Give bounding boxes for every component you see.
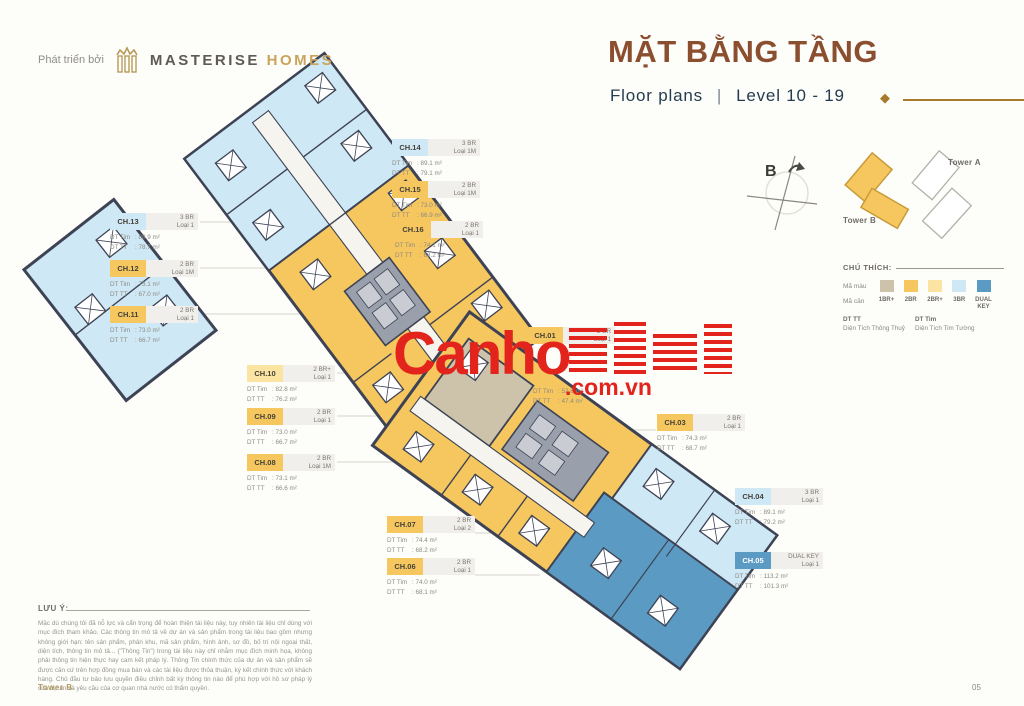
watermark-suffix: .com.vn (565, 374, 652, 401)
legend-swatch-2br (904, 280, 918, 292)
unit-type: 2 BRLoại 1M (283, 454, 335, 471)
unit-code-chip: CH.10 (247, 365, 283, 382)
unit-code-chip: CH.09 (247, 408, 283, 425)
unit-code-chip: CH.04 (735, 488, 771, 505)
compass-icon: B (745, 138, 825, 238)
unit-type: 2 BRLoại 1M (146, 260, 198, 277)
unit-label-ch10: CH.102 BR+Loại 1DT Tim: 82.8 m²DT TT: 76… (247, 365, 335, 405)
unit-label-ch16: CH.162 BRLoại 1DT Tim: 74.1 m²DT TT: 68.… (395, 221, 483, 261)
legend-dt-tim: DT Tim Diện Tích Tim Tường (915, 316, 1005, 332)
legend-swatch-2br+ (928, 280, 942, 292)
unit-code-chip: CH.06 (387, 558, 423, 575)
unit-type: 2 BR+Loại 1 (283, 365, 335, 382)
unit-label-ch06: CH.062 BRLoại 1DT Tim: 74.0 m²DT TT: 68.… (387, 558, 475, 598)
unit-code-chip: CH.08 (247, 454, 283, 471)
unit-label-ch07: CH.072 BRLoại 2DT Tim: 74.4 m²DT TT: 68.… (387, 516, 475, 556)
unit-type: 3 BRLoại 1M (428, 139, 480, 156)
dt-tim-abbr: DT Tim (915, 316, 1005, 323)
unit-type: 2 BRLoại 1 (431, 221, 483, 238)
unit-label-ch12: CH.122 BRLoại 1MDT Tim: 73.1 m²DT TT: 67… (110, 260, 198, 300)
unit-areas: DT Tim: 73.1 m²DT TT: 66.6 m² (247, 474, 335, 494)
unit-code-chip: CH.12 (110, 260, 146, 277)
subtitle-divider: | (717, 86, 722, 106)
unit-label-ch13: CH.133 BRLoại 1DT Tim: 88.9 m²DT TT: 78.… (110, 213, 198, 253)
page-title: MẶT BẰNG TẦNG (608, 34, 878, 70)
legend-rule (896, 268, 1004, 269)
unit-label-ch08: CH.082 BRLoại 1MDT Tim: 73.1 m²DT TT: 66… (247, 454, 335, 494)
unit-areas: DT Tim: 74.3 m²DT TT: 68.7 m² (657, 434, 745, 454)
unit-type: 2 BRLoại 2 (423, 516, 475, 533)
unit-label-ch09: CH.092 BRLoại 1DT Tim: 73.0 m²DT TT: 66.… (247, 408, 335, 448)
unit-type: 2 BRLoại 1 (283, 408, 335, 425)
note-rule (66, 610, 310, 611)
unit-areas: DT Tim: 73.0 m²DT TT: 66.7 m² (110, 326, 198, 346)
legend-swatch-row (876, 280, 994, 292)
unit-label-ch03: CH.032 BRLoại 1DT Tim: 74.3 m²DT TT: 68.… (657, 414, 745, 454)
page-subtitle: Floor plans | Level 10 - 19 (610, 86, 845, 106)
legend-swatch-1br+ (880, 280, 894, 292)
unit-type: DUAL KEYLoại 1 (771, 552, 823, 569)
page-number: 05 (972, 683, 981, 692)
unit-areas: DT Tim: 74.0 m²DT TT: 68.1 m² (387, 578, 475, 598)
developer-row: Phát triển bởi MASTERISE HOMES (38, 46, 334, 74)
legend-code-row-label: Mã căn (843, 298, 864, 305)
legend-code-2br: 2BR (900, 297, 921, 311)
legend-color-row-label: Mã màu (843, 283, 866, 290)
unit-type: 3 BRLoại 1 (146, 213, 198, 230)
masterise-logo-icon (114, 46, 140, 74)
unit-type: 2 BRLoại 1 (693, 414, 745, 431)
watermark-buildings-icon (569, 322, 732, 374)
tower-a-label: Tower A (948, 158, 981, 167)
canho-watermark: Canho .com.vn (383, 322, 763, 402)
unit-type: 3 BRLoại 1 (771, 488, 823, 505)
unit-areas: DT Tim: 89.1 m²DT TT: 79.2 m² (735, 508, 823, 528)
legend-code-dual-key: DUAL KEY (973, 297, 994, 311)
legend-swatch-dual-key (977, 280, 991, 292)
legend-title: CHÚ THÍCH: (843, 263, 892, 272)
unit-label-ch14: CH.143 BRLoại 1MDT Tim: 89.1 m²DT TT: 79… (392, 139, 480, 179)
unit-code-chip: CH.03 (657, 414, 693, 431)
note-title: LƯU Ý: (38, 604, 69, 613)
watermark-text: Canho (393, 324, 570, 384)
subtitle-right: Level 10 - 19 (736, 86, 845, 106)
legend-code-1br+: 1BR+ (876, 297, 897, 311)
unit-areas: DT Tim: 74.4 m²DT TT: 68.2 m² (387, 536, 475, 556)
compass-letter: B (765, 163, 777, 180)
developer-prefix: Phát triển bởi (38, 54, 104, 66)
legend-code-2br+: 2BR+ (925, 297, 946, 311)
unit-label-ch15: CH.152 BRLoại 1MDT Tim: 73.0 m²DT TT: 66… (392, 181, 480, 221)
unit-areas: DT Tim: 113.2 m²DT TT: 101.3 m² (735, 572, 823, 592)
footer-tower-label: Tower B (38, 683, 72, 692)
diamond-icon: ◆ (880, 90, 890, 106)
unit-areas: DT Tim: 82.8 m²DT TT: 76.2 m² (247, 385, 335, 405)
dt-tt-abbr: DT TT (843, 316, 909, 323)
unit-code-chip: CH.15 (392, 181, 428, 198)
unit-areas: DT Tim: 73.0 m²DT TT: 66.7 m² (247, 428, 335, 448)
unit-code-chip: CH.11 (110, 306, 146, 323)
unit-code-chip: CH.16 (395, 221, 431, 238)
unit-areas: DT Tim: 89.1 m²DT TT: 79.1 m² (392, 159, 480, 179)
legend-dt-tt: DT TT Diện Tích Thông Thuỷ (843, 316, 909, 332)
note-body: Mặc dù chúng tôi đã nỗ lực và cẩn trọng … (38, 619, 312, 694)
subtitle-left: Floor plans (610, 86, 703, 106)
unit-code-chip: CH.14 (392, 139, 428, 156)
unit-type: 2 BRLoại 1M (428, 181, 480, 198)
legend-code-row: 1BR+2BR2BR+3BRDUAL KEY (876, 297, 994, 311)
dt-tt-full: Diện Tích Thông Thuỷ (843, 325, 909, 332)
brand-primary: MASTERISE (150, 52, 260, 69)
unit-label-ch04: CH.043 BRLoại 1DT Tim: 89.1 m²DT TT: 79.… (735, 488, 823, 528)
unit-code-chip: CH.13 (110, 213, 146, 230)
unit-areas: DT Tim: 74.1 m²DT TT: 68.2 m² (395, 241, 483, 261)
unit-areas: DT Tim: 88.9 m²DT TT: 78.7 m² (110, 233, 198, 253)
unit-type: 2 BRLoại 1 (146, 306, 198, 323)
unit-code-chip: CH.05 (735, 552, 771, 569)
unit-label-ch05: CH.05DUAL KEYLoại 1DT Tim: 113.2 m²DT TT… (735, 552, 823, 592)
dt-tim-full: Diện Tích Tim Tường (915, 325, 1005, 332)
brand-name: MASTERISE HOMES (150, 52, 334, 69)
brand-secondary: HOMES (267, 52, 335, 69)
unit-areas: DT Tim: 73.0 m²DT TT: 66.9 m² (392, 201, 480, 221)
title-rule (903, 99, 1024, 101)
tower-b-label: Tower B (843, 216, 876, 225)
legend-swatch-3br (952, 280, 966, 292)
unit-code-chip: CH.07 (387, 516, 423, 533)
unit-label-ch11: CH.112 BRLoại 1DT Tim: 73.0 m²DT TT: 66.… (110, 306, 198, 346)
legend-code-3br: 3BR (949, 297, 970, 311)
unit-type: 2 BRLoại 1 (423, 558, 475, 575)
unit-areas: DT Tim: 73.1 m²DT TT: 67.0 m² (110, 280, 198, 300)
